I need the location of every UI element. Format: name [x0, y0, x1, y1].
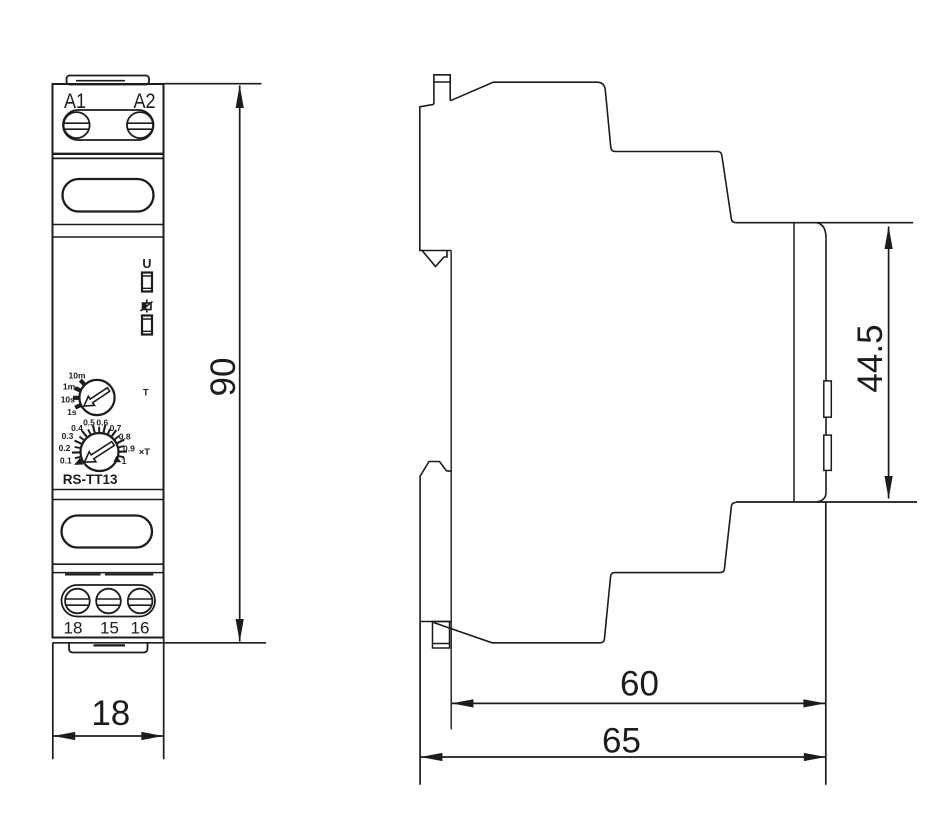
svg-text:T: T [143, 388, 149, 398]
svg-text:44.5: 44.5 [851, 324, 890, 392]
svg-text:18: 18 [91, 694, 130, 733]
svg-text:1: 1 [122, 456, 127, 466]
svg-text:0.4: 0.4 [71, 423, 83, 433]
svg-text:15: 15 [100, 619, 119, 638]
svg-text:16: 16 [131, 619, 150, 638]
svg-text:60: 60 [620, 665, 659, 704]
svg-text:×T: ×T [139, 447, 151, 458]
svg-text:0.9: 0.9 [123, 444, 135, 454]
svg-text:0.5: 0.5 [83, 418, 95, 428]
svg-text:1m: 1m [63, 381, 76, 391]
svg-text:10s: 10s [61, 395, 75, 405]
svg-text:0.1: 0.1 [60, 455, 72, 465]
svg-text:90: 90 [204, 358, 243, 397]
svg-text:0.2: 0.2 [59, 443, 71, 453]
svg-text:0.8: 0.8 [119, 432, 131, 442]
svg-text:RS-TT13: RS-TT13 [63, 472, 118, 487]
svg-text:U: U [142, 257, 151, 271]
svg-text:65: 65 [602, 722, 641, 761]
svg-text:10m: 10m [68, 370, 85, 380]
svg-text:18: 18 [64, 619, 83, 638]
svg-text:0.6: 0.6 [96, 418, 108, 428]
svg-text:1s: 1s [67, 407, 77, 417]
